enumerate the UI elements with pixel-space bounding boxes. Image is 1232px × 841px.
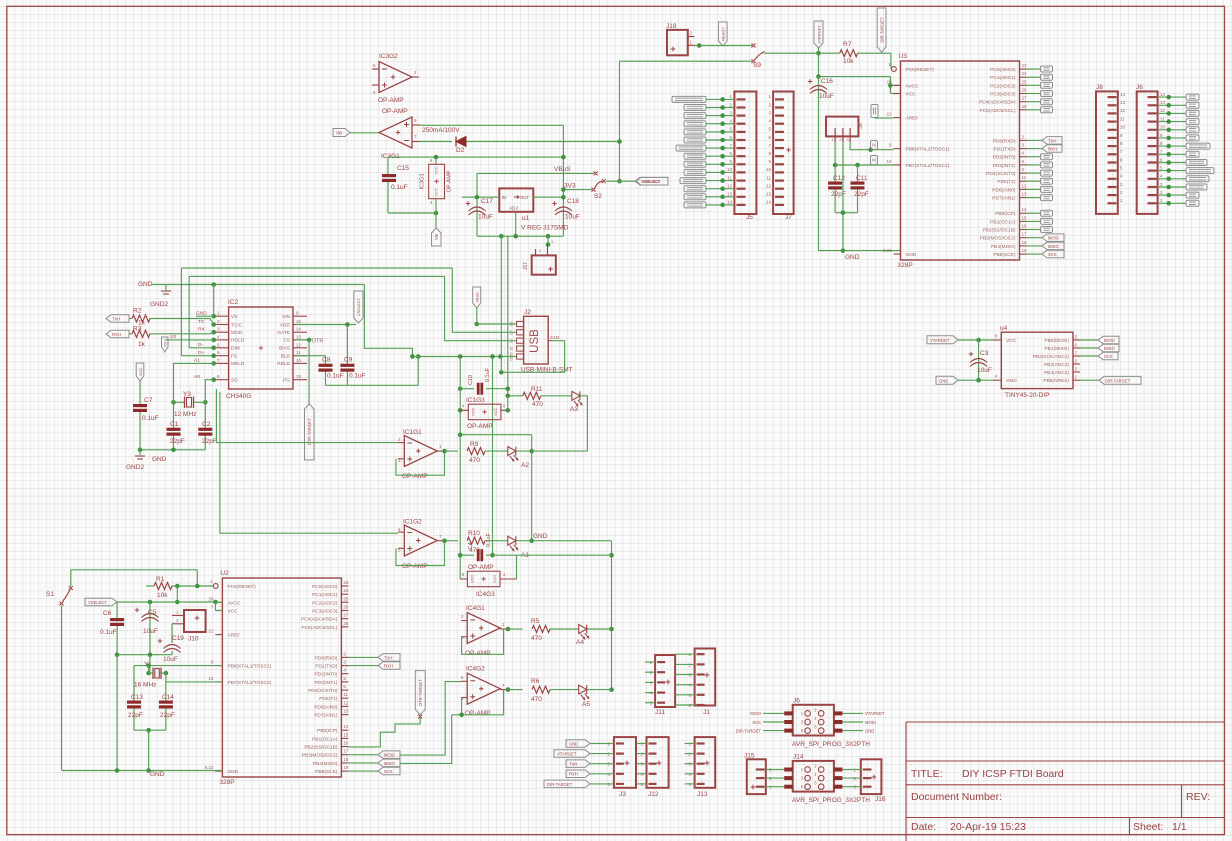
svg-text:22pF: 22pF xyxy=(202,438,217,445)
svg-text:14: 14 xyxy=(766,200,772,205)
svg-text:PC6(RESET): PC6(RESET) xyxy=(906,67,935,73)
svg-text:12: 12 xyxy=(1120,108,1126,113)
svg-text:10uF: 10uF xyxy=(163,656,178,663)
svg-text:3: 3 xyxy=(847,138,849,142)
svg-text:TITLE:: TITLE: xyxy=(911,768,943,780)
svg-text:DIR-TARGET: DIR-TARGET xyxy=(1105,378,1131,383)
svg-text:GND: GND xyxy=(138,281,153,288)
svg-text:IC3G3: IC3G3 xyxy=(420,174,426,190)
svg-text:PC0(ADC0): PC0(ADC0) xyxy=(990,67,1016,73)
svg-text:J8: J8 xyxy=(1096,84,1103,91)
svg-text:PC6(RESET): PC6(RESET) xyxy=(227,584,256,590)
svg-text:TX: TX xyxy=(198,319,205,325)
svg-text:13: 13 xyxy=(727,192,733,197)
svg-text:14: 14 xyxy=(1022,207,1028,212)
svg-text:17: 17 xyxy=(1022,232,1028,237)
svg-text:C4: C4 xyxy=(468,542,474,549)
svg-text:VSELECT: VSELECT xyxy=(642,179,662,184)
svg-text:C8: C8 xyxy=(322,357,331,364)
svg-text:R5: R5 xyxy=(531,618,540,625)
svg-text:RXH: RXH xyxy=(384,664,393,669)
svg-text:C19: C19 xyxy=(172,635,184,642)
svg-text:J7: J7 xyxy=(785,214,792,221)
svg-text:8,22: 8,22 xyxy=(205,765,214,770)
svg-text:13: 13 xyxy=(1120,100,1126,105)
svg-text:PC5(ADC5/SCL): PC5(ADC5/SCL) xyxy=(301,625,337,631)
svg-text:13: 13 xyxy=(343,709,349,714)
svg-text:J12: J12 xyxy=(648,791,659,798)
svg-text:470: 470 xyxy=(532,401,543,408)
svg-text:D-: D- xyxy=(198,342,203,348)
svg-text:V3: V3 xyxy=(164,342,168,347)
svg-text:U2: U2 xyxy=(220,570,229,577)
svg-text:OUT: OUT xyxy=(520,195,530,200)
svg-text:R1: R1 xyxy=(156,576,165,583)
svg-text:OP-AMP: OP-AMP xyxy=(378,97,404,104)
svg-text:A0: A0 xyxy=(194,374,200,380)
svg-text:PB4(MISO): PB4(MISO) xyxy=(313,761,338,767)
svg-text:RXH: RXH xyxy=(1048,147,1057,152)
svg-text:GND: GND xyxy=(569,741,578,746)
svg-text:TXH: TXH xyxy=(384,655,392,660)
svg-text:PC4(ADC4/SDA): PC4(ADC4/SDA) xyxy=(979,100,1016,106)
svg-text:S1M: S1M xyxy=(550,335,560,340)
svg-text:PB6(XTAL1/TOSC1): PB6(XTAL1/TOSC1) xyxy=(906,147,950,153)
svg-text:10: 10 xyxy=(766,167,772,172)
svg-text:VCC: VCC xyxy=(470,575,475,584)
svg-text:10k: 10k xyxy=(843,58,854,65)
svg-text:RXH: RXH xyxy=(112,332,121,337)
svg-text:RBLD: RBLD xyxy=(277,361,290,367)
svg-text:Document Number:: Document Number: xyxy=(911,791,1002,803)
svg-text:TINY45-20-DIP: TINY45-20-DIP xyxy=(1005,392,1049,399)
svg-text:S1: S1 xyxy=(46,591,54,598)
svg-text:PD6(AIN0): PD6(AIN0) xyxy=(992,187,1016,193)
svg-text:25: 25 xyxy=(1022,79,1028,84)
svg-text:26: 26 xyxy=(343,605,349,610)
svg-text:C14: C14 xyxy=(162,694,174,701)
svg-text:HOLD: HOLD xyxy=(231,338,245,344)
svg-text:VB: VB xyxy=(336,131,342,136)
svg-text:DIY ICSP FTDI Board: DIY ICSP FTDI Board xyxy=(962,768,1064,780)
svg-text:MISO: MISO xyxy=(1104,346,1115,351)
svg-text:0.1uF: 0.1uF xyxy=(327,373,344,380)
svg-text:C9: C9 xyxy=(344,357,353,364)
svg-text:PD1(TXD): PD1(TXD) xyxy=(993,147,1016,153)
svg-text:PD4(XCK/T0): PD4(XCK/T0) xyxy=(986,171,1016,177)
svg-text:11: 11 xyxy=(766,175,771,180)
svg-text:DIM: DIM xyxy=(231,346,240,352)
svg-text:11: 11 xyxy=(296,350,301,355)
svg-text:D2: D2 xyxy=(456,147,465,154)
svg-text:10uF: 10uF xyxy=(977,367,992,374)
svg-text:PD2(INT0): PD2(INT0) xyxy=(314,672,337,678)
svg-text:16: 16 xyxy=(343,741,349,746)
svg-text:C7: C7 xyxy=(144,397,153,404)
svg-text:14: 14 xyxy=(727,200,733,205)
svg-text:14: 14 xyxy=(1160,92,1166,97)
svg-text:OP-AMP: OP-AMP xyxy=(467,423,493,430)
svg-text:OP-AMP: OP-AMP xyxy=(465,710,491,717)
svg-text:TXH: TXH xyxy=(112,317,120,322)
svg-text:VDD: VDD xyxy=(280,322,291,328)
svg-text:24: 24 xyxy=(343,588,349,593)
svg-text:VCC: VCC xyxy=(434,188,439,197)
svg-text:MISO: MISO xyxy=(384,761,395,766)
svg-text:PB0(MOSI): PB0(MOSI) xyxy=(1044,338,1069,344)
svg-text:J14: J14 xyxy=(793,753,804,760)
svg-text:15: 15 xyxy=(1022,215,1028,220)
svg-text:A3: A3 xyxy=(570,406,578,413)
svg-text:21: 21 xyxy=(208,629,214,634)
svg-text:DIR-TARGET: DIR-TARGET xyxy=(736,728,762,733)
svg-text:R2: R2 xyxy=(133,308,142,315)
svg-text:CS: CS xyxy=(283,338,290,344)
svg-text:23: 23 xyxy=(1022,63,1028,68)
svg-text:VSELECT: VSELECT xyxy=(356,297,361,316)
svg-text:22pF: 22pF xyxy=(170,438,185,445)
svg-text:19: 19 xyxy=(1022,248,1028,253)
svg-text:22pF: 22pF xyxy=(854,191,869,198)
svg-text:26: 26 xyxy=(1022,88,1028,93)
svg-text:MISO: MISO xyxy=(1048,244,1059,249)
svg-text:1k: 1k xyxy=(138,341,146,348)
svg-text:18: 18 xyxy=(1022,240,1028,245)
svg-text:R10: R10 xyxy=(468,530,480,537)
svg-text:GATE: GATE xyxy=(277,330,290,336)
svg-text:2: 2 xyxy=(839,138,841,142)
svg-text:PB4(MISO): PB4(MISO) xyxy=(991,244,1016,250)
svg-text:S2: S2 xyxy=(594,193,602,200)
svg-text:PC0(ADC0): PC0(ADC0) xyxy=(312,584,338,590)
svg-text:VCC: VCC xyxy=(227,609,238,615)
svg-text:GND: GND xyxy=(196,311,207,317)
svg-text:AREF: AREF xyxy=(227,633,240,639)
svg-text:3V3: 3V3 xyxy=(564,183,576,190)
svg-text:11: 11 xyxy=(1022,175,1027,180)
svg-text:25: 25 xyxy=(343,596,349,601)
svg-text:PC1(ADC1): PC1(ADC1) xyxy=(312,592,338,598)
svg-text:GND: GND xyxy=(150,771,165,778)
svg-text:C17: C17 xyxy=(481,198,493,205)
svg-text:11: 11 xyxy=(1120,116,1125,121)
svg-text:AVCC: AVCC xyxy=(906,83,920,89)
svg-text:19: 19 xyxy=(343,765,349,770)
svg-text:PB3(MOSI/OC2): PB3(MOSI/OC2) xyxy=(980,236,1016,242)
svg-text:VCC: VCC xyxy=(139,368,143,376)
svg-text:MOSI: MOSI xyxy=(865,720,876,725)
svg-text:0.1uF: 0.1uF xyxy=(100,629,117,636)
svg-text:J15: J15 xyxy=(744,753,755,760)
svg-text:22pF: 22pF xyxy=(160,712,175,719)
svg-text:AVR_SPI_PROG_3X2PTH: AVR_SPI_PROG_3X2PTH xyxy=(792,797,870,804)
svg-text:ADJ: ADJ xyxy=(509,206,518,211)
svg-text:IC3G1: IC3G1 xyxy=(381,153,400,160)
svg-text:VIN: VIN xyxy=(282,314,291,320)
svg-text:SCK: SCK xyxy=(752,720,761,725)
svg-text:16 MHz: 16 MHz xyxy=(134,682,156,689)
svg-text:C2: C2 xyxy=(202,421,211,428)
svg-text:VBuS: VBuS xyxy=(475,292,480,303)
svg-text:10uF: 10uF xyxy=(143,628,158,635)
svg-text:C10: C10 xyxy=(468,375,474,385)
svg-text:A1: A1 xyxy=(194,358,200,364)
svg-text:u1: u1 xyxy=(522,215,530,222)
svg-text:21: 21 xyxy=(886,112,892,117)
svg-text:BLD: BLD xyxy=(281,354,291,360)
svg-text:10: 10 xyxy=(886,159,892,164)
svg-text:VBuS: VBuS xyxy=(554,166,571,173)
svg-text:C5: C5 xyxy=(148,609,157,616)
svg-text:MOSI: MOSI xyxy=(1048,236,1059,241)
svg-text:12: 12 xyxy=(1022,183,1028,188)
svg-text:J11: J11 xyxy=(655,709,665,716)
svg-text:DTR-TARGET: DTR-TARGET xyxy=(418,679,423,706)
svg-text:J13: J13 xyxy=(697,791,708,798)
svg-text:14: 14 xyxy=(296,327,302,332)
svg-text:VCC: VCC xyxy=(1006,338,1017,344)
svg-text:C18: C18 xyxy=(567,198,579,205)
svg-text:14: 14 xyxy=(1120,92,1126,97)
svg-text:1/1: 1/1 xyxy=(1172,821,1187,833)
svg-text:CH340G: CH340G xyxy=(226,393,251,400)
svg-text:470: 470 xyxy=(469,457,480,464)
svg-text:DTR-TARGET: DTR-TARGET xyxy=(307,418,312,445)
svg-text:GND2: GND2 xyxy=(126,464,144,471)
svg-text:VSELECT: VSELECT xyxy=(88,600,108,605)
svg-text:OP-AMP: OP-AMP xyxy=(402,473,428,480)
svg-text:PB1(OC1A): PB1(OC1A) xyxy=(990,219,1016,225)
svg-text:PD2(INT0): PD2(INT0) xyxy=(993,155,1016,161)
svg-text:IC4G3: IC4G3 xyxy=(476,591,495,598)
svg-text:PB2(SCK/ADC1): PB2(SCK/ADC1) xyxy=(1033,354,1070,360)
svg-text:J6: J6 xyxy=(793,697,800,704)
svg-text:R11: R11 xyxy=(531,386,543,393)
svg-text:R3: R3 xyxy=(133,326,142,333)
svg-text:IC4G1: IC4G1 xyxy=(466,605,485,612)
svg-text:23: 23 xyxy=(343,580,349,585)
svg-text:SCK: SCK xyxy=(384,769,393,774)
svg-text:GND: GND xyxy=(845,254,860,261)
svg-text:VCC: VCC xyxy=(906,92,917,98)
svg-text:PB5(NRES): PB5(NRES) xyxy=(1043,378,1069,384)
svg-text:DTR: DTR xyxy=(312,339,323,345)
svg-text:PB2(SS/OC1B): PB2(SS/OC1B) xyxy=(982,228,1015,234)
svg-text:OP-AMP: OP-AMP xyxy=(402,563,428,570)
svg-text:IC4G2: IC4G2 xyxy=(466,666,485,673)
svg-text:PC3(ADC3): PC3(ADC3) xyxy=(990,92,1016,98)
svg-text:A4: A4 xyxy=(576,639,584,646)
svg-text:PD3(INT1): PD3(INT1) xyxy=(993,163,1016,169)
svg-text:10: 10 xyxy=(1160,125,1166,130)
svg-text:J17: J17 xyxy=(523,262,529,270)
svg-text:PC1(ADC1): PC1(ADC1) xyxy=(990,75,1016,81)
svg-text:PB5(SCK): PB5(SCK) xyxy=(993,252,1016,258)
svg-text:0.1uF: 0.1uF xyxy=(391,184,408,191)
svg-text:REV:: REV: xyxy=(1186,791,1210,803)
svg-text:PD1(TXD): PD1(TXD) xyxy=(315,664,338,670)
svg-text:0.1uF: 0.1uF xyxy=(349,373,366,380)
svg-text:GND: GND xyxy=(533,533,548,540)
svg-text:IN: IN xyxy=(502,195,507,200)
svg-text:GND2: GND2 xyxy=(150,301,168,308)
svg-text:PB0(ICP): PB0(ICP) xyxy=(317,728,338,734)
svg-text:0.1uF: 0.1uF xyxy=(486,532,492,547)
svg-text:PD0(RXD): PD0(RXD) xyxy=(315,655,338,661)
svg-text:DIR-TARGET: DIR-TARGET xyxy=(879,17,884,43)
svg-text:20: 20 xyxy=(208,596,214,601)
svg-text:J1: J1 xyxy=(703,709,710,716)
svg-text:PD7(AIN1): PD7(AIN1) xyxy=(992,196,1016,202)
svg-text:R6: R6 xyxy=(531,678,540,685)
svg-text:13: 13 xyxy=(1022,192,1028,197)
svg-text:250mA/100V: 250mA/100V xyxy=(422,127,460,134)
svg-text:VCC: VCC xyxy=(434,166,439,175)
svg-text:PB3(MOSI/OC2): PB3(MOSI/OC2) xyxy=(302,753,338,759)
svg-text:VCC: VCC xyxy=(493,408,498,417)
svg-text:16: 16 xyxy=(1022,224,1028,229)
svg-text:J9: J9 xyxy=(858,123,864,129)
svg-text:PB7(XTAL2/TOSC2): PB7(XTAL2/TOSC2) xyxy=(906,163,950,169)
svg-text:15: 15 xyxy=(343,732,349,737)
svg-text:RXH: RXH xyxy=(569,772,578,777)
svg-text:10uF: 10uF xyxy=(478,214,493,221)
svg-text:28: 28 xyxy=(343,621,349,626)
svg-text:12: 12 xyxy=(727,184,733,189)
svg-text:J2: J2 xyxy=(524,309,531,316)
svg-text:FS: FS xyxy=(231,354,237,360)
svg-text:8,22: 8,22 xyxy=(883,248,892,253)
svg-text:13: 13 xyxy=(766,192,772,197)
svg-text:12 MHz: 12 MHz xyxy=(174,411,196,418)
svg-text:READY: READY xyxy=(721,27,726,41)
svg-text:MOD: MOD xyxy=(231,330,243,336)
svg-text:DIR-TARGET: DIR-TARGET xyxy=(547,782,573,787)
svg-text:12: 12 xyxy=(296,342,302,347)
svg-text:S9: S9 xyxy=(753,62,761,69)
svg-text:12: 12 xyxy=(766,184,772,189)
svg-text:J18: J18 xyxy=(666,23,677,30)
svg-text:GND: GND xyxy=(906,252,917,258)
svg-text:SCK: SCK xyxy=(1104,354,1113,359)
svg-text:1: 1 xyxy=(832,138,834,142)
svg-text:11: 11 xyxy=(727,175,732,180)
svg-text:PB3(ADC3): PB3(ADC3) xyxy=(1044,362,1069,368)
svg-text:14: 14 xyxy=(343,724,349,729)
svg-text:18: 18 xyxy=(343,757,349,762)
svg-text:J5: J5 xyxy=(746,214,753,221)
svg-text:PD7(AIN1): PD7(AIN1) xyxy=(314,713,338,719)
svg-text:IC3G2: IC3G2 xyxy=(379,53,398,60)
svg-text:PD4(XCK/T0): PD4(XCK/T0) xyxy=(308,688,338,694)
svg-text:J16: J16 xyxy=(875,796,886,803)
svg-text:C11: C11 xyxy=(856,175,868,182)
svg-text:C15: C15 xyxy=(397,165,409,172)
svg-text:0.1uF: 0.1uF xyxy=(485,367,491,382)
svg-text:C3: C3 xyxy=(980,350,989,357)
svg-text:PB6(XTAL1/TOSC1): PB6(XTAL1/TOSC1) xyxy=(227,664,271,670)
svg-text:RX: RX xyxy=(198,327,205,333)
svg-text:22pF: 22pF xyxy=(831,191,846,198)
svg-text:PB7(XTAL2/TOSC2): PB7(XTAL2/TOSC2) xyxy=(227,680,271,686)
svg-text:MOSI: MOSI xyxy=(1104,338,1115,343)
svg-text:C16: C16 xyxy=(821,78,833,85)
svg-text:TXH: TXH xyxy=(1048,138,1056,143)
svg-text:AVCC: AVCC xyxy=(227,600,241,606)
svg-text:10: 10 xyxy=(1120,125,1126,130)
svg-text:PB5(SCK): PB5(SCK) xyxy=(315,769,338,775)
svg-text:10: 10 xyxy=(727,167,733,172)
svg-text:AVR_SPI_PROG_3X2PTH: AVR_SPI_PROG_3X2PTH xyxy=(792,741,870,748)
svg-text:A2: A2 xyxy=(521,462,529,469)
svg-text:PD0(RXD): PD0(RXD) xyxy=(993,138,1016,144)
svg-text:470: 470 xyxy=(531,635,542,642)
svg-text:SG: SG xyxy=(231,378,238,384)
svg-text:USB: USB xyxy=(529,329,541,353)
svg-text:20-Apr-19 15:23: 20-Apr-19 15:23 xyxy=(950,821,1026,833)
svg-text:GND: GND xyxy=(227,769,238,775)
svg-text:VTARGET: VTARGET xyxy=(865,711,885,716)
svg-text:GND: GND xyxy=(865,728,874,733)
svg-text:PB0(ICP): PB0(ICP) xyxy=(995,211,1016,217)
svg-text:22pF: 22pF xyxy=(128,712,143,719)
svg-text:PB1(MISO): PB1(MISO) xyxy=(1044,346,1069,352)
svg-text:10: 10 xyxy=(208,676,214,681)
svg-text:15: 15 xyxy=(296,374,302,379)
svg-text:PB4(ADC2): PB4(ADC2) xyxy=(1044,370,1069,376)
svg-text:GND: GND xyxy=(939,378,948,383)
svg-text:TXH: TXH xyxy=(569,762,577,767)
svg-text:J10: J10 xyxy=(188,636,199,643)
svg-text:MOSI: MOSI xyxy=(384,753,395,758)
svg-text:V3: V3 xyxy=(170,334,176,340)
svg-text:C13: C13 xyxy=(131,694,143,701)
svg-text:IC1G1: IC1G1 xyxy=(403,429,422,436)
svg-text:PD5(T1): PD5(T1) xyxy=(319,696,338,702)
svg-text:PC5(ADC5/SCL): PC5(ADC5/SCL) xyxy=(980,108,1016,114)
svg-text:17: 17 xyxy=(343,749,349,754)
svg-text:VTARGET: VTARGET xyxy=(816,25,821,44)
svg-text:PC3(ADC3): PC3(ADC3) xyxy=(312,609,338,615)
svg-text:328P: 328P xyxy=(219,779,234,786)
svg-text:MISO: MISO xyxy=(750,711,761,716)
svg-text:PG: PG xyxy=(283,378,290,384)
svg-text:R9: R9 xyxy=(470,441,479,448)
svg-text:D+: D+ xyxy=(198,350,204,356)
svg-text:u4: u4 xyxy=(1000,325,1008,332)
svg-text:Date:: Date: xyxy=(911,821,936,833)
svg-text:C1: C1 xyxy=(170,421,179,428)
svg-text:28: 28 xyxy=(1022,104,1028,109)
svg-text:SCK: SCK xyxy=(1048,252,1057,257)
svg-text:J3: J3 xyxy=(619,791,626,798)
svg-text:20: 20 xyxy=(886,79,892,84)
svg-text:PC4(ADC4/SDA): PC4(ADC4/SDA) xyxy=(301,617,338,623)
svg-text:470: 470 xyxy=(531,696,542,703)
svg-text:IC2: IC2 xyxy=(228,299,239,306)
svg-text:10uF: 10uF xyxy=(565,214,580,221)
svg-text:GND: GND xyxy=(1006,378,1017,384)
svg-text:IC1G3: IC1G3 xyxy=(466,397,485,404)
svg-text:13: 13 xyxy=(1160,100,1166,105)
svg-text:27: 27 xyxy=(343,613,349,618)
svg-text:PC2(ADC2): PC2(ADC2) xyxy=(312,600,338,606)
svg-text:A5: A5 xyxy=(582,701,590,708)
svg-text:Sheet:: Sheet: xyxy=(1133,821,1163,833)
svg-text:PB2(SS/OC1B): PB2(SS/OC1B) xyxy=(304,745,337,751)
svg-text:R7: R7 xyxy=(843,41,852,48)
svg-text:OP-AMP: OP-AMP xyxy=(382,108,408,115)
